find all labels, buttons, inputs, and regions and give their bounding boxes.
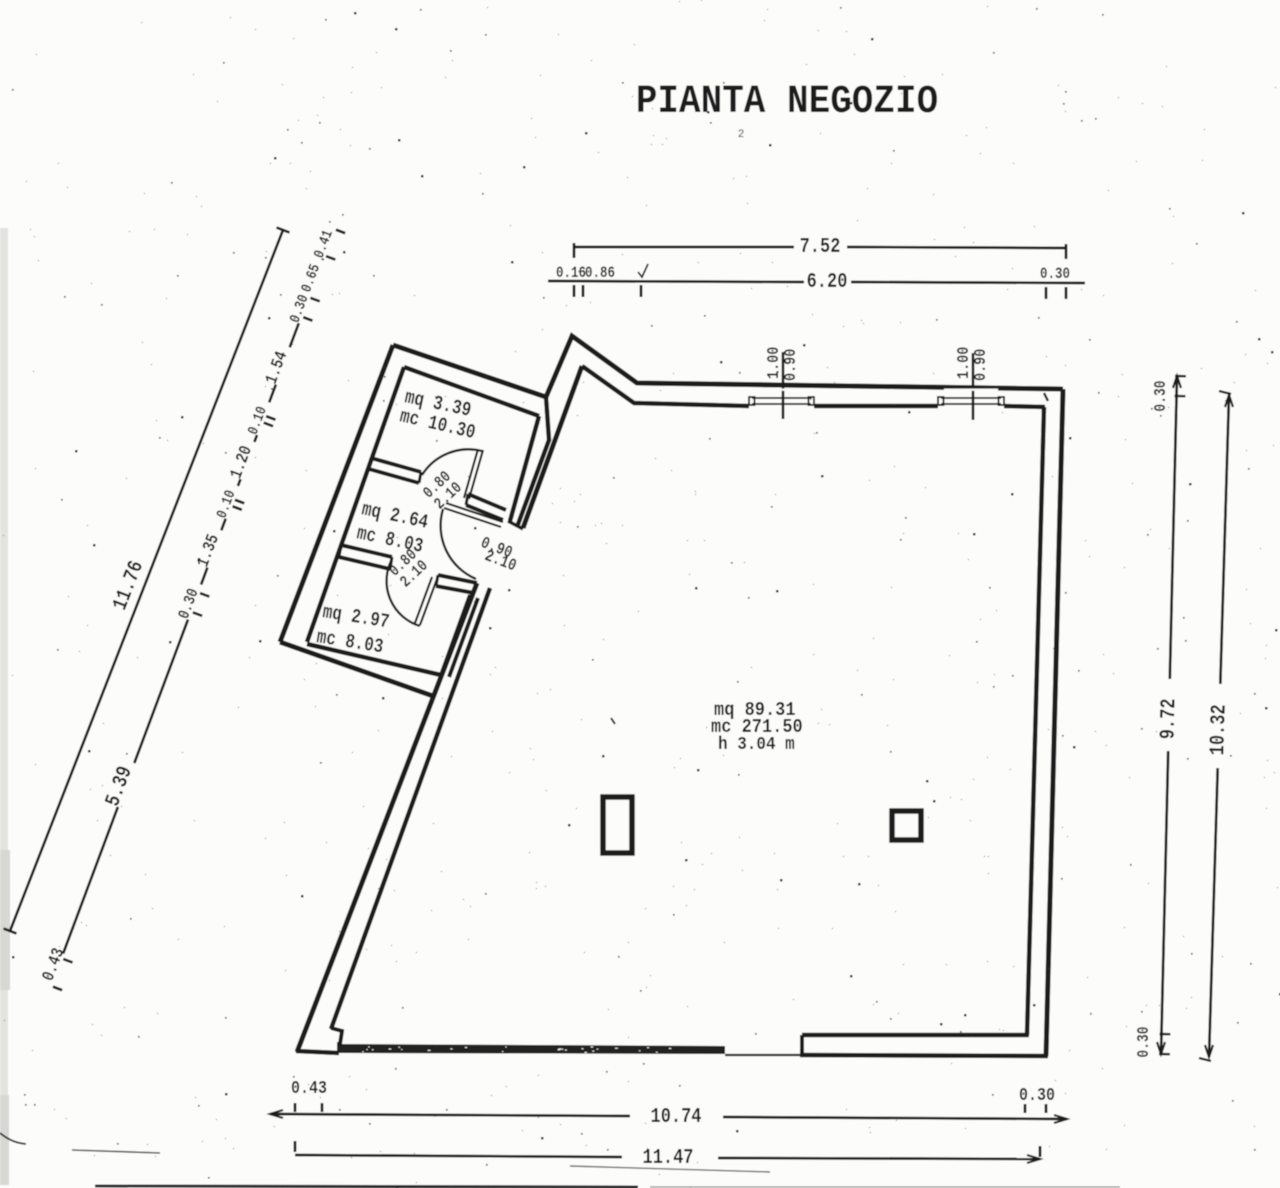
svg-text:0.30: 0.30: [1153, 380, 1171, 411]
svg-text:0.86: 0.86: [585, 265, 615, 283]
svg-text:0.90: 0.90: [971, 349, 991, 381]
svg-text:10.74: 10.74: [651, 1104, 702, 1128]
svg-text:0.43: 0.43: [291, 1079, 327, 1100]
svg-text:2: 2: [738, 129, 745, 141]
svg-text:9.72: 9.72: [1156, 698, 1181, 739]
svg-text:0.90: 0.90: [781, 349, 801, 381]
svg-text:0.30: 0.30: [1136, 1026, 1154, 1057]
svg-text:0.30: 0.30: [1040, 266, 1070, 284]
svg-text:PIANTA NEGOZIO: PIANTA NEGOZIO: [636, 80, 938, 125]
svg-text:11.47: 11.47: [643, 1145, 694, 1169]
svg-text:0.30: 0.30: [1019, 1086, 1055, 1107]
svg-text:10.32: 10.32: [1206, 704, 1232, 756]
svg-text:h 3.04 m: h 3.04 m: [718, 735, 795, 755]
svg-text:6.20: 6.20: [807, 269, 848, 293]
svg-text:7.52: 7.52: [800, 234, 841, 258]
svg-text:0.16: 0.16: [556, 265, 586, 283]
